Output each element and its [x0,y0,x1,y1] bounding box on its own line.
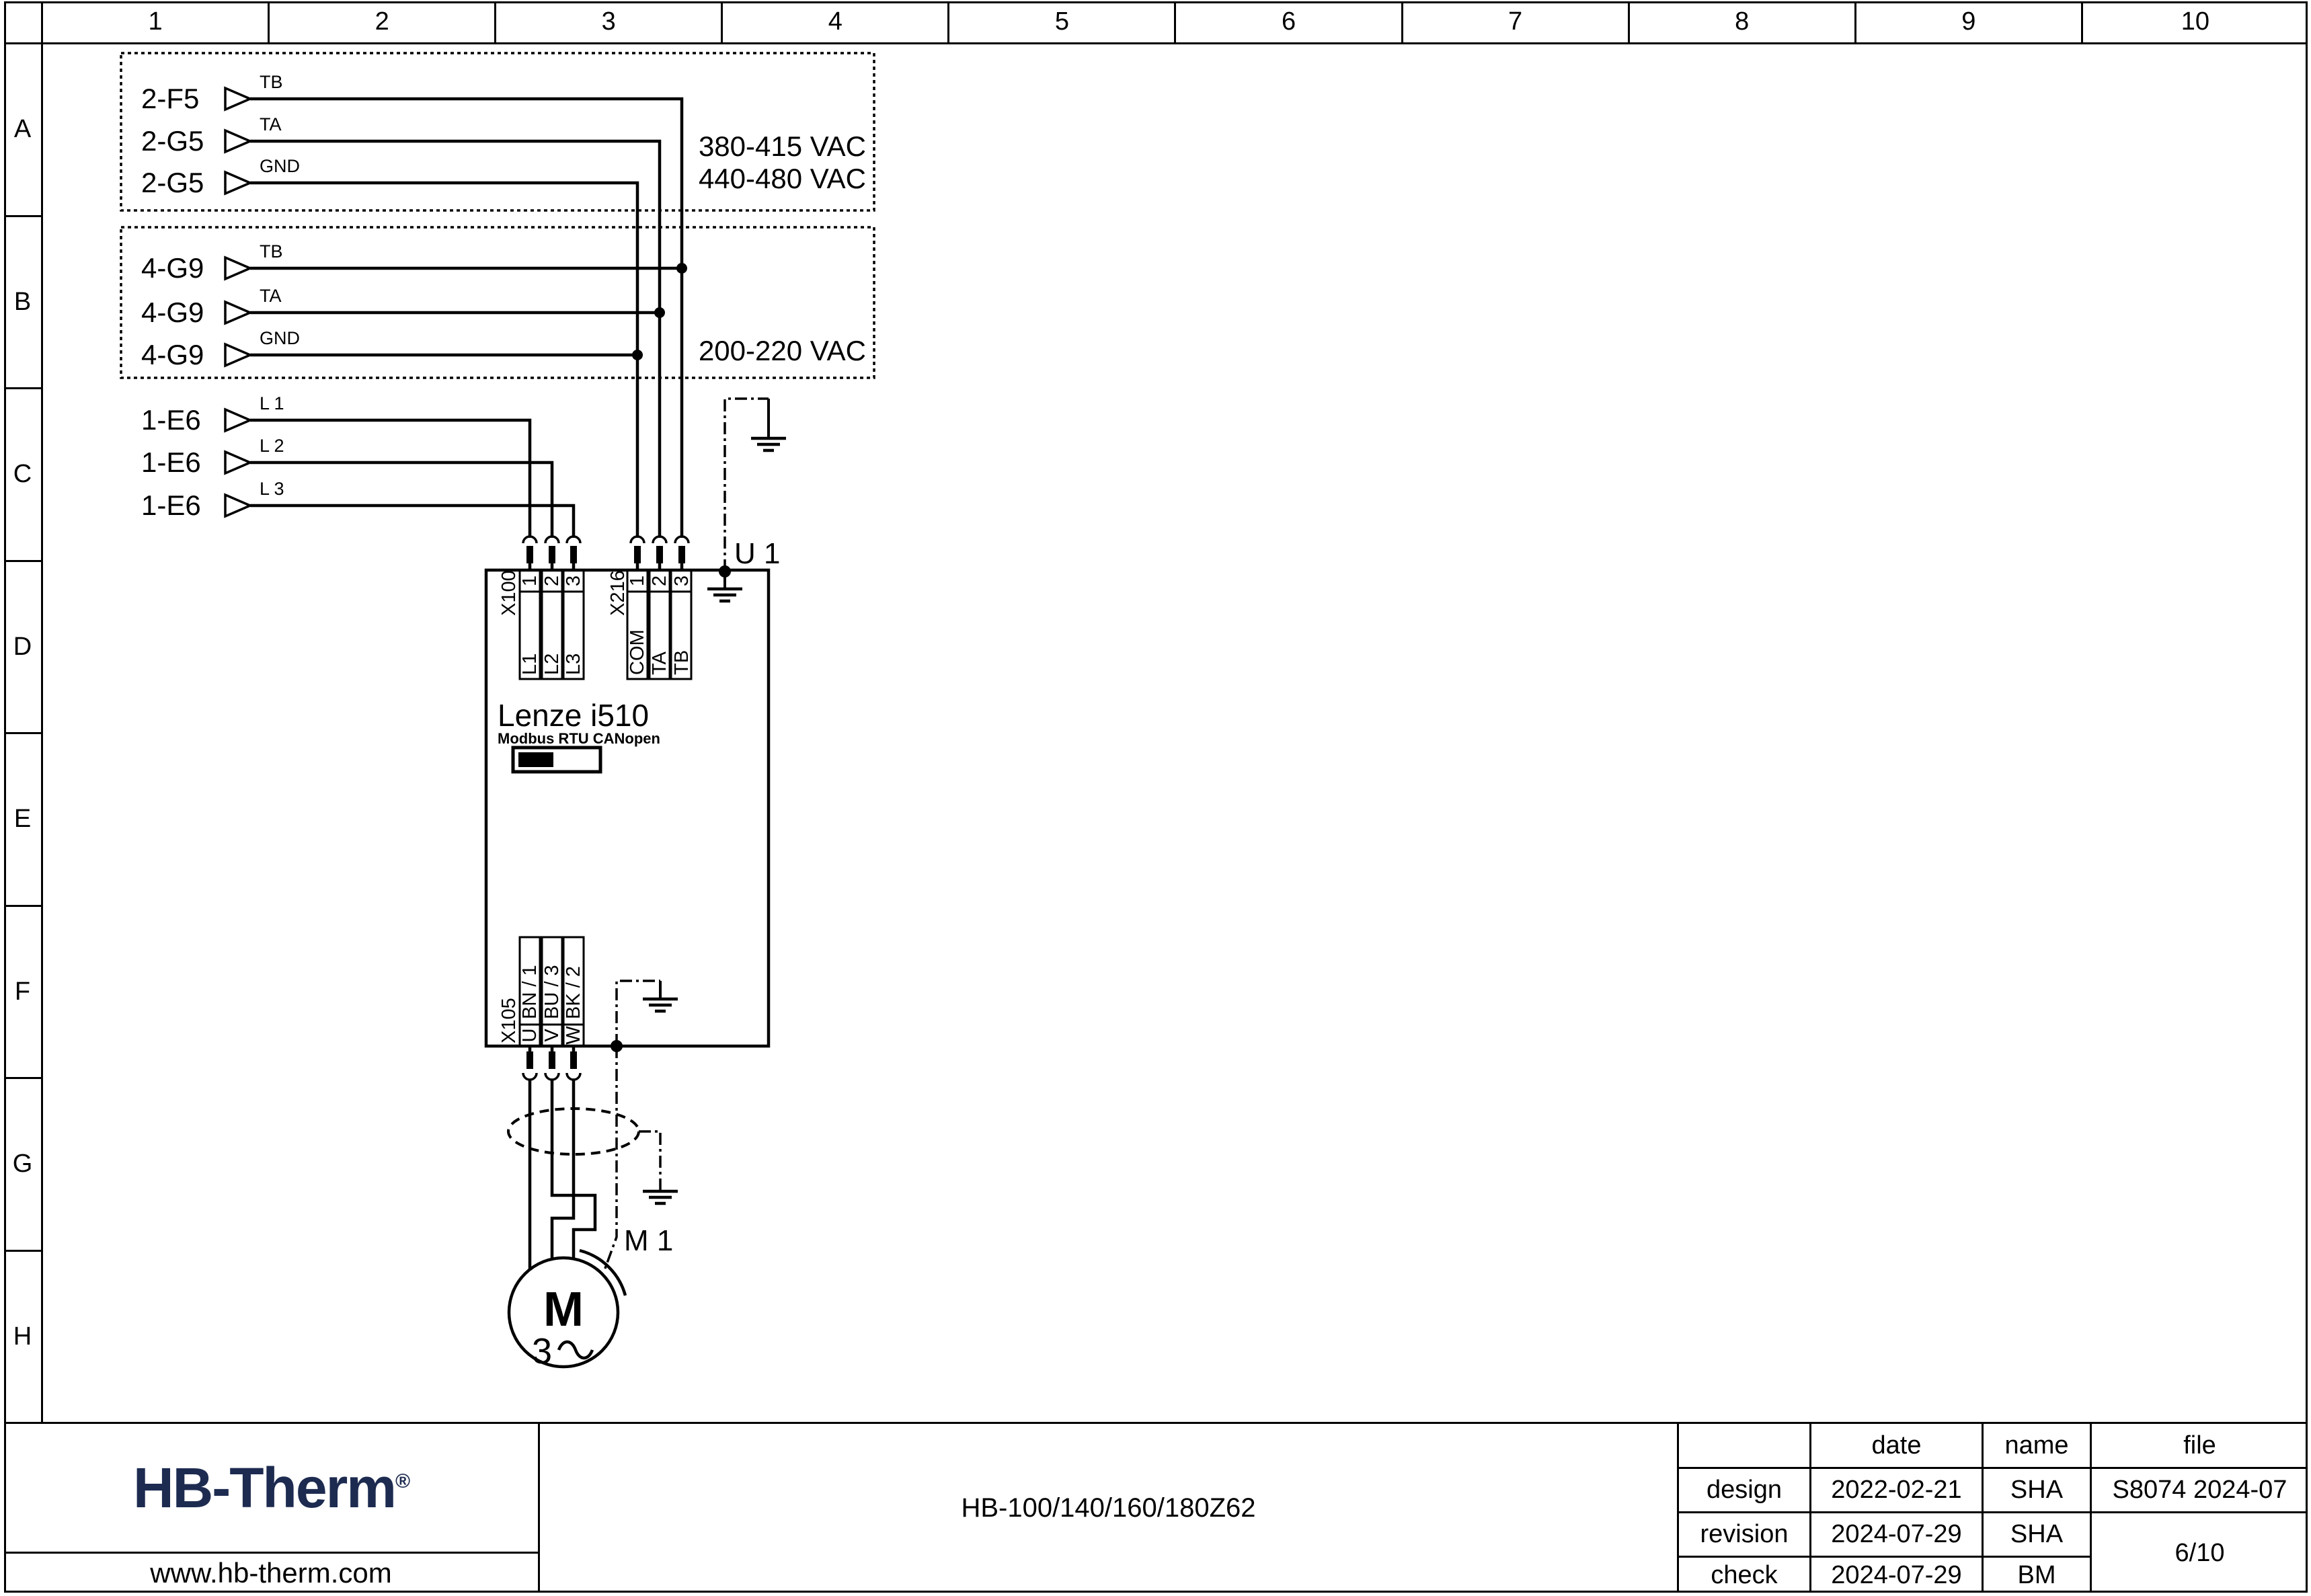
x100-pin-3: 3 [563,575,584,586]
x100-signal-l3: L3 [563,653,584,675]
socket-arc [523,536,537,543]
earth-symbol [707,589,742,601]
x105-terminal-w: W [563,1026,584,1045]
socket-arc [567,1073,580,1080]
design-label: design [1679,1467,1809,1511]
drive-model: Lenze i510 [498,698,649,733]
signal-arrow [225,495,250,516]
mains-signal-l2: L 2 [260,436,284,456]
x105-label: X105 [498,998,520,1043]
mains-signal-l1: L 1 [260,393,284,413]
wire-gnd-hv [250,183,637,538]
mains-device-1: 1-E6 [141,404,201,436]
x216-pin-2: 2 [649,575,670,586]
hv-supply-box: 2-F5 2-G5 2-G5 TB TA GND 380-415 VAC 440… [121,53,874,210]
signal-arrow [225,452,250,473]
wire-tb-hv [250,99,682,538]
date-column-header: date [1809,1424,1982,1467]
earth-symbol [643,999,678,1011]
x100-signal-l2: L2 [541,653,563,675]
hv-device-3: 2-G5 [141,167,204,198]
hv-signal-ta: TA [260,114,282,134]
pin-bars-bottom [526,1051,577,1069]
check-name: BM [1982,1556,2090,1593]
check-date: 2024-07-29 [1809,1556,1982,1593]
socket-arcs-top [523,536,689,543]
file-number-cell: S8074 2024-07 [2090,1467,2308,1511]
signal-arrow [225,88,250,110]
hv-signal-gnd: GND [260,156,300,176]
socket-arc [653,536,666,543]
mains-signal-l3: L 3 [260,479,284,499]
sheet-number-cell: 6/10 [2090,1511,2308,1593]
shield-line-inner-bottom [617,981,660,1046]
pin-bars-top [526,546,685,563]
comm-switch-label: Modbus RTU CANopen [498,730,660,747]
x105-signal-bu: BU / 3 [541,965,563,1019]
check-label: check [1679,1556,1809,1593]
socket-arc [631,536,644,543]
x105-terminal-v: V [541,1029,563,1042]
ctrl-signal-ta: TA [260,286,282,306]
comm-switch-slider [518,752,553,767]
x105-terminal-u: U [519,1029,541,1043]
hv-device-2: 2-G5 [141,125,204,157]
x100-signal-l1: L1 [519,653,541,675]
x105-signal-bk: BK / 2 [563,966,584,1019]
x216-label: X216 [607,570,629,616]
pin-bar [678,546,685,563]
drive-unit: U 1 X100 1 2 3 L1 L2 L3 [486,537,780,1046]
x100-label: X100 [498,570,520,616]
x100-pin-1: 1 [519,575,541,586]
socket-arc [567,536,580,543]
title-block: HB-Therm® www.hb-therm.com HB-100/140/16… [4,1422,2308,1593]
motor-group: M 3 M 1 [508,1051,673,1371]
ctrl-signal-gnd: GND [260,328,300,348]
ctrl-device-2: 4-G9 [141,296,204,328]
hv-signal-tb: TB [260,72,283,92]
pin-bar [570,1051,577,1069]
revision-table: date name file design 2022-02-21 SHA S80… [1677,1424,2308,1593]
name-column-header: name [1982,1424,2090,1467]
wire-l1 [250,420,530,538]
socket-arc [545,1073,559,1080]
junction-dot [676,263,687,274]
registered-mark: ® [395,1470,409,1492]
x216-pin-3: 3 [671,575,693,586]
design-name: SHA [1982,1467,2090,1511]
x216-signal-ta: TA [649,651,670,675]
schematic-page: 1 2 3 4 5 6 7 8 9 10 A B C D E F G H 2-F… [0,0,2311,1596]
socket-arc [675,536,689,543]
mains-device-2: 1-E6 [141,446,201,478]
file-column-header: file [2090,1424,2308,1467]
earth-symbol [643,1191,678,1203]
signal-arrow [225,172,250,194]
junction-dot [632,350,643,360]
pin-bar [526,546,533,563]
motor-designation: M 1 [624,1224,673,1257]
logo-section: HB-Therm® www.hb-therm.com [4,1424,540,1593]
x216-signal-com: COM [627,629,648,675]
top-connector-pins [523,536,689,563]
ctrl-device-1: 4-G9 [141,252,204,284]
motor-letter: M [543,1283,584,1336]
shield-line-cable [639,1131,660,1191]
signal-arrow [225,257,250,279]
wire-l2 [250,463,552,538]
signal-arrow [225,344,250,366]
signal-arrow [225,409,250,431]
x216-signal-tb: TB [671,650,693,675]
product-code-cell: HB-100/140/160/180Z62 [540,1424,1677,1593]
website-cell: www.hb-therm.com [4,1552,538,1593]
shield-lines [604,399,769,1272]
revision-date: 2024-07-29 [1809,1511,1982,1556]
wire-motor-w [552,1080,574,1259]
design-date: 2022-02-21 [1809,1467,1982,1511]
wiring-diagram: 2-F5 2-G5 2-G5 TB TA GND 380-415 VAC 440… [0,0,2311,1596]
pin-bar [549,1051,555,1069]
x216-pin-1: 1 [627,575,648,586]
hv-voltage-range-1: 380-415 VAC [699,130,866,162]
socket-arcs-bottom [523,1073,580,1080]
empty-header-cell [1679,1424,1809,1467]
ctrl-voltage-range: 200-220 VAC [699,335,866,366]
ctrl-signal-tb: TB [260,241,283,262]
x105-signal-bn: BN / 1 [519,965,541,1019]
ac-tilde-icon [559,1342,592,1358]
logo-area: HB-Therm® [4,1424,538,1552]
ctrl-device-3: 4-G9 [141,339,204,370]
hv-device-1: 2-F5 [141,83,199,114]
drive-designation: U 1 [734,537,780,570]
socket-arc [523,1073,537,1080]
logo-wordmark: HB-Therm [133,1456,395,1519]
ground-leads [660,399,769,999]
hv-voltage-range-2: 440-480 VAC [699,163,866,194]
revision-label: revision [1679,1511,1809,1556]
wire-l3 [250,506,574,538]
earth-symbol [751,438,786,450]
pin-bar [656,546,663,563]
junction-dot [654,307,665,318]
wire-ta-hv [250,141,660,538]
pin-bar [634,546,641,563]
revision-name: SHA [1982,1511,2090,1556]
mains-device-3: 1-E6 [141,489,201,521]
ground-network [604,399,786,1272]
x100-pin-2: 2 [541,575,563,586]
socket-arc [545,536,559,543]
motor-phase-count: 3 [532,1331,552,1371]
mains-input-group: 1-E6 1-E6 1-E6 L 1 L 2 L 3 [141,393,284,521]
signal-arrow [225,302,250,323]
pin-bar [549,546,555,563]
shield-line-motor [604,1046,617,1272]
pin-bar [526,1051,533,1069]
hb-therm-logo: HB-Therm® [133,1455,409,1521]
pin-bar [570,546,577,563]
signal-arrow [225,130,250,152]
